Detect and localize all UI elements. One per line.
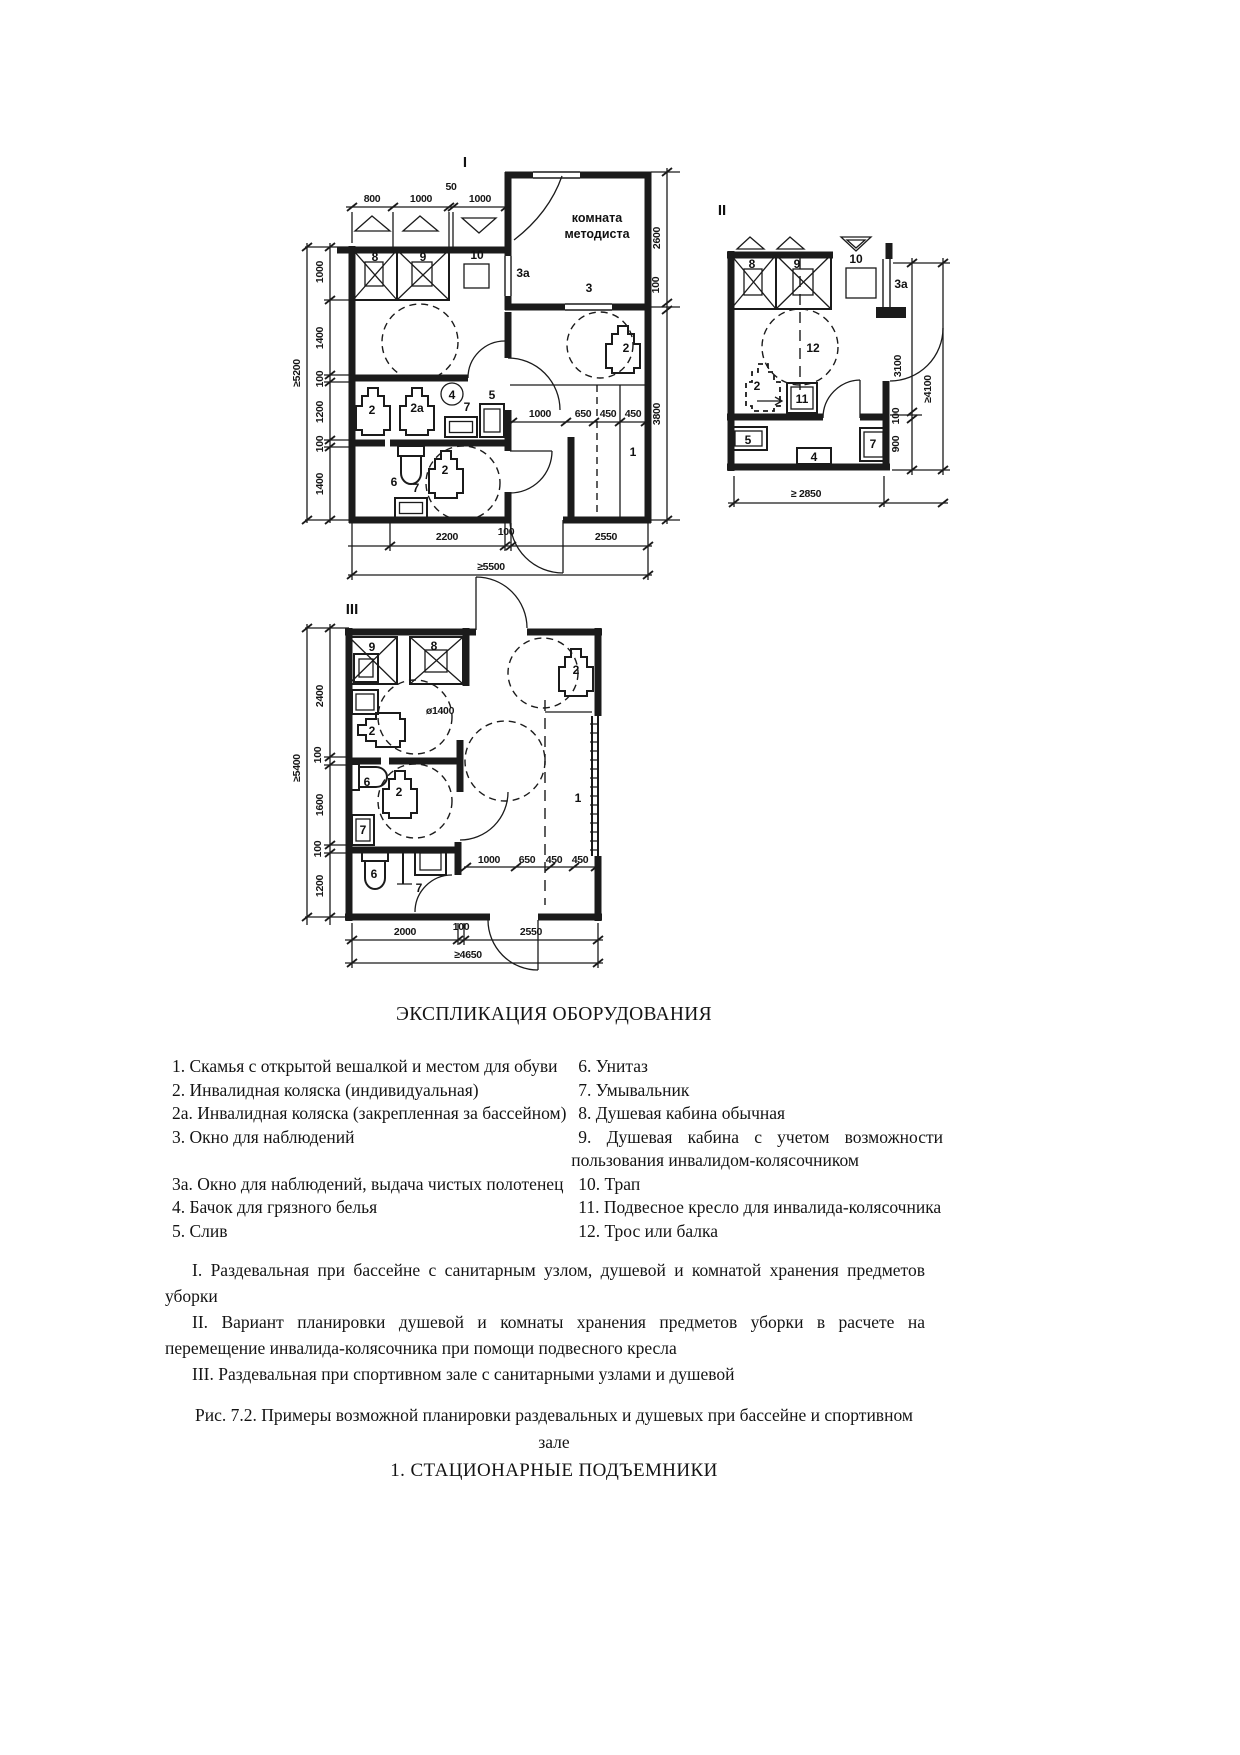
svg-text:≥ 2850: ≥ 2850	[791, 488, 822, 500]
svg-text:1000: 1000	[410, 193, 433, 205]
svg-text:650: 650	[575, 408, 592, 420]
svg-text:3100: 3100	[892, 354, 904, 377]
svg-text:2550: 2550	[520, 926, 543, 938]
plan-III-inner-dims: 1000 650 450 450	[461, 854, 601, 871]
equipment-item-4: 4. Бачок для грязного белья	[165, 1196, 571, 1220]
plan-I-label-9: 9	[420, 250, 427, 264]
svg-text:1400: 1400	[314, 326, 326, 349]
equipment-item-12: 12. Трос или балка	[571, 1220, 943, 1244]
equipment-row: 3. Окно для наблюдений 9. Душевая кабина…	[165, 1126, 943, 1173]
equipment-item-1: 1. Скамья с открытой вешалкой и местом д…	[165, 1055, 571, 1079]
plan-I-label-3a: 3а	[516, 266, 530, 280]
svg-text:800: 800	[364, 193, 381, 205]
svg-text:100: 100	[312, 746, 324, 763]
svg-text:650: 650	[519, 854, 536, 866]
plan-II-label-12: 12	[806, 341, 820, 355]
partition-post	[396, 851, 412, 884]
plan-I-top-dims: 800 1000 50 1000	[346, 181, 511, 247]
shower-head-icon	[777, 237, 804, 249]
plan-III-label-9: 9	[369, 640, 376, 654]
equipment-item-2: 2. Инвалидная коляска (индивидуальная)	[165, 1079, 571, 1103]
plan-I-right-dims: 2600 100 3800	[650, 168, 680, 524]
svg-text:450: 450	[600, 408, 617, 420]
plan-I-label-4: 4	[449, 388, 456, 402]
plan-I-label-2a: 2а	[410, 401, 424, 415]
note-III: III. Раздевальная при спортивном зале с …	[165, 1361, 925, 1387]
plan-I-label-5: 5	[489, 388, 496, 402]
plan-III-left-dims: 2400 100 1600 100 1200 ≥5400	[291, 624, 349, 925]
explication-section: ЭКСПЛИКАЦИЯ ОБОРУДОВАНИЯ 1. Скамья с отк…	[165, 1002, 943, 1484]
turning-circle	[378, 680, 452, 754]
transfer-arrow-icon	[757, 397, 782, 405]
svg-text:2000: 2000	[394, 926, 417, 938]
plan-III-shower-cabin-symbols	[349, 637, 463, 714]
figure-drawings: I	[0, 0, 1240, 985]
figure-caption: Рис. 7.2. Примеры возможной планировки р…	[182, 1402, 927, 1456]
plan-I-title: I	[463, 154, 467, 171]
plan-I-inner-dims: 1000 650 450 450	[507, 408, 651, 426]
equipment-item-6: 6. Унитаз	[571, 1055, 943, 1079]
equipment-list: 1. Скамья с открытой вешалкой и местом д…	[165, 1055, 943, 1243]
next-section-heading: 1. СТАЦИОНАРНЫЕ ПОДЪЕМНИКИ	[165, 1458, 943, 1484]
turning-circle	[465, 721, 545, 801]
equipment-item-8: 8. Душевая кабина обычная	[571, 1102, 943, 1126]
plan-III-walls	[345, 628, 602, 921]
plan-III-label-1: 1	[575, 791, 582, 805]
plan-notes: I. Раздевальная при бассейне с санитарны…	[165, 1257, 943, 1387]
svg-text:≥4650: ≥4650	[454, 949, 482, 961]
svg-text:1200: 1200	[314, 874, 326, 897]
plan-II-label-7: 7	[870, 437, 877, 451]
plan-I-label-1: 1	[630, 445, 637, 459]
plan-III-label-8: 8	[431, 639, 438, 653]
document-page: I	[0, 0, 1240, 1755]
plan-III-bottom-dims: 2000 100 2550 ≥4650	[345, 921, 603, 968]
plan-I-bottom-dims: 2200 100 2550 ≥5500	[347, 523, 653, 580]
room-name-line2: методиста	[564, 227, 630, 241]
svg-text:50: 50	[445, 181, 457, 193]
equipment-item-2a: 2а. Инвалидная коляска (закрепленная за …	[165, 1102, 571, 1126]
svg-text:100: 100	[650, 276, 662, 293]
plan-III-doors	[415, 577, 538, 970]
turning-circle	[382, 304, 458, 380]
equipment-item-3: 3. Окно для наблюдений	[165, 1126, 571, 1173]
equipment-row: 3а. Окно для наблюдений, выдача чистых п…	[165, 1173, 943, 1197]
drain-icon	[462, 218, 496, 233]
svg-text:≥5500: ≥5500	[477, 561, 505, 573]
shower-head-icon	[403, 216, 438, 231]
svg-text:2550: 2550	[595, 531, 618, 543]
plan-II-label-5: 5	[745, 433, 752, 447]
plan-II-label-10: 10	[849, 252, 863, 266]
shower-head-icon	[355, 216, 390, 231]
equipment-row: 2. Инвалидная коляска (индивидуальная) 7…	[165, 1079, 943, 1103]
explication-title: ЭКСПЛИКАЦИЯ ОБОРУДОВАНИЯ	[165, 1002, 943, 1028]
svg-text:100: 100	[314, 370, 326, 387]
equipment-item-7: 7. Умывальник	[571, 1079, 943, 1103]
plan-I-label-3: 3	[586, 281, 593, 295]
plan-I: I	[291, 154, 680, 580]
svg-text:≥4100: ≥4100	[922, 375, 934, 403]
plan-II-label-2: 2	[754, 379, 761, 393]
equipment-row: 1. Скамья с открытой вешалкой и местом д…	[165, 1055, 943, 1079]
equipment-item-3a: 3а. Окно для наблюдений, выдача чистых п…	[165, 1173, 571, 1197]
plan-III-label-6-mid: 6	[364, 775, 371, 789]
washbasin-symbol	[395, 498, 427, 518]
plan-II-label-3a: 3а	[894, 277, 908, 291]
equipment-item-5: 5. Слив	[165, 1220, 571, 1244]
turning-circle	[508, 638, 578, 708]
plan-III-label-6-bot: 6	[371, 867, 378, 881]
svg-text:1000: 1000	[478, 854, 501, 866]
shower-head-icon	[737, 237, 764, 249]
turning-circle	[378, 764, 452, 838]
svg-text:1400: 1400	[314, 472, 326, 495]
note-I: I. Раздевальная при бассейне с санитарны…	[165, 1257, 925, 1309]
svg-text:2600: 2600	[651, 226, 663, 249]
svg-text:100: 100	[453, 921, 470, 933]
plan-II-title: II	[718, 202, 726, 219]
svg-text:2200: 2200	[436, 531, 459, 543]
svg-text:900: 900	[890, 435, 902, 452]
svg-text:1000: 1000	[314, 260, 326, 283]
plan-III-label-7-bot: 7	[416, 881, 423, 895]
svg-text:≥5200: ≥5200	[291, 359, 303, 387]
svg-text:3800: 3800	[651, 402, 663, 425]
drain-icon	[841, 237, 871, 251]
plan-III-label-7-mid: 7	[360, 823, 367, 837]
plan-III-title: III	[346, 601, 359, 618]
svg-text:100: 100	[890, 407, 902, 424]
svg-text:450: 450	[625, 408, 642, 420]
plan-I-label-7-wc: 7	[413, 481, 420, 495]
equipment-row: 5. Слив 12. Трос или балка	[165, 1220, 943, 1244]
svg-text:100: 100	[314, 435, 326, 452]
svg-text:100: 100	[498, 526, 515, 538]
plan-II-walls	[727, 243, 906, 471]
svg-text:450: 450	[546, 854, 563, 866]
svg-text:450: 450	[572, 854, 589, 866]
equipment-row: 2а. Инвалидная коляска (закрепленная за …	[165, 1102, 943, 1126]
room-name-line1: комната	[572, 211, 623, 225]
equipment-item-11: 11. Подвесное кресло для инвалида-колясо…	[571, 1196, 943, 1220]
plan-II-label-4: 4	[811, 450, 818, 464]
plan-I-label-2: 2	[369, 403, 376, 417]
svg-text:1000: 1000	[529, 408, 552, 420]
drain-grate-symbol	[846, 268, 876, 298]
washbasin-symbol	[445, 417, 477, 437]
drain-grate-symbol	[464, 264, 489, 288]
plan-II-shower-cabin-symbols	[731, 237, 876, 309]
equipment-row: 4. Бачок для грязного белья 11. Подвесно…	[165, 1196, 943, 1220]
plan-I-doors	[468, 176, 563, 573]
svg-text:1200: 1200	[314, 400, 326, 423]
plan-II: II 8 9 10 3а	[718, 202, 950, 507]
plan-III-label-2-left: 2	[369, 724, 376, 738]
note-II: II. Вариант планировки душевой и комнаты…	[165, 1309, 925, 1361]
svg-text:1000: 1000	[469, 193, 492, 205]
svg-text:2400: 2400	[314, 684, 326, 707]
washbasin-symbol	[352, 690, 378, 714]
plan-I-label-2-mid: 2	[623, 341, 630, 355]
plan-I-label-2-wc: 2	[442, 463, 449, 477]
svg-text:≥5400: ≥5400	[291, 754, 303, 782]
plan-III-label-2-mid: 2	[396, 785, 403, 799]
toilet-symbol	[398, 446, 424, 484]
equipment-item-9: 9. Душевая кабина с учетом возможности п…	[571, 1126, 943, 1173]
plan-I-label-10: 10	[470, 248, 484, 262]
plan-I-label-8: 8	[372, 250, 379, 264]
plan-I-label-7: 7	[464, 400, 471, 414]
plan-III: III	[291, 577, 603, 970]
plan-III-label-2-top: 2	[573, 663, 580, 677]
wheelchair-symbol	[746, 364, 780, 411]
svg-text:100: 100	[312, 840, 324, 857]
plan-II-label-8: 8	[749, 257, 756, 271]
drain-symbol	[480, 404, 504, 437]
plan-III-label-diameter: ø1400	[426, 705, 455, 717]
equipment-item-10: 10. Трап	[571, 1173, 943, 1197]
plan-II-bottom-dims: ≥ 2850	[728, 476, 948, 507]
plan-I-label-6: 6	[391, 475, 398, 489]
svg-text:1600: 1600	[314, 793, 326, 816]
plan-I-left-dims: 1000 1400 100 1200 100 1400 ≥5200	[291, 243, 352, 524]
plan-II-label-11: 11	[796, 392, 809, 406]
wheelchair-symbol	[358, 713, 405, 747]
